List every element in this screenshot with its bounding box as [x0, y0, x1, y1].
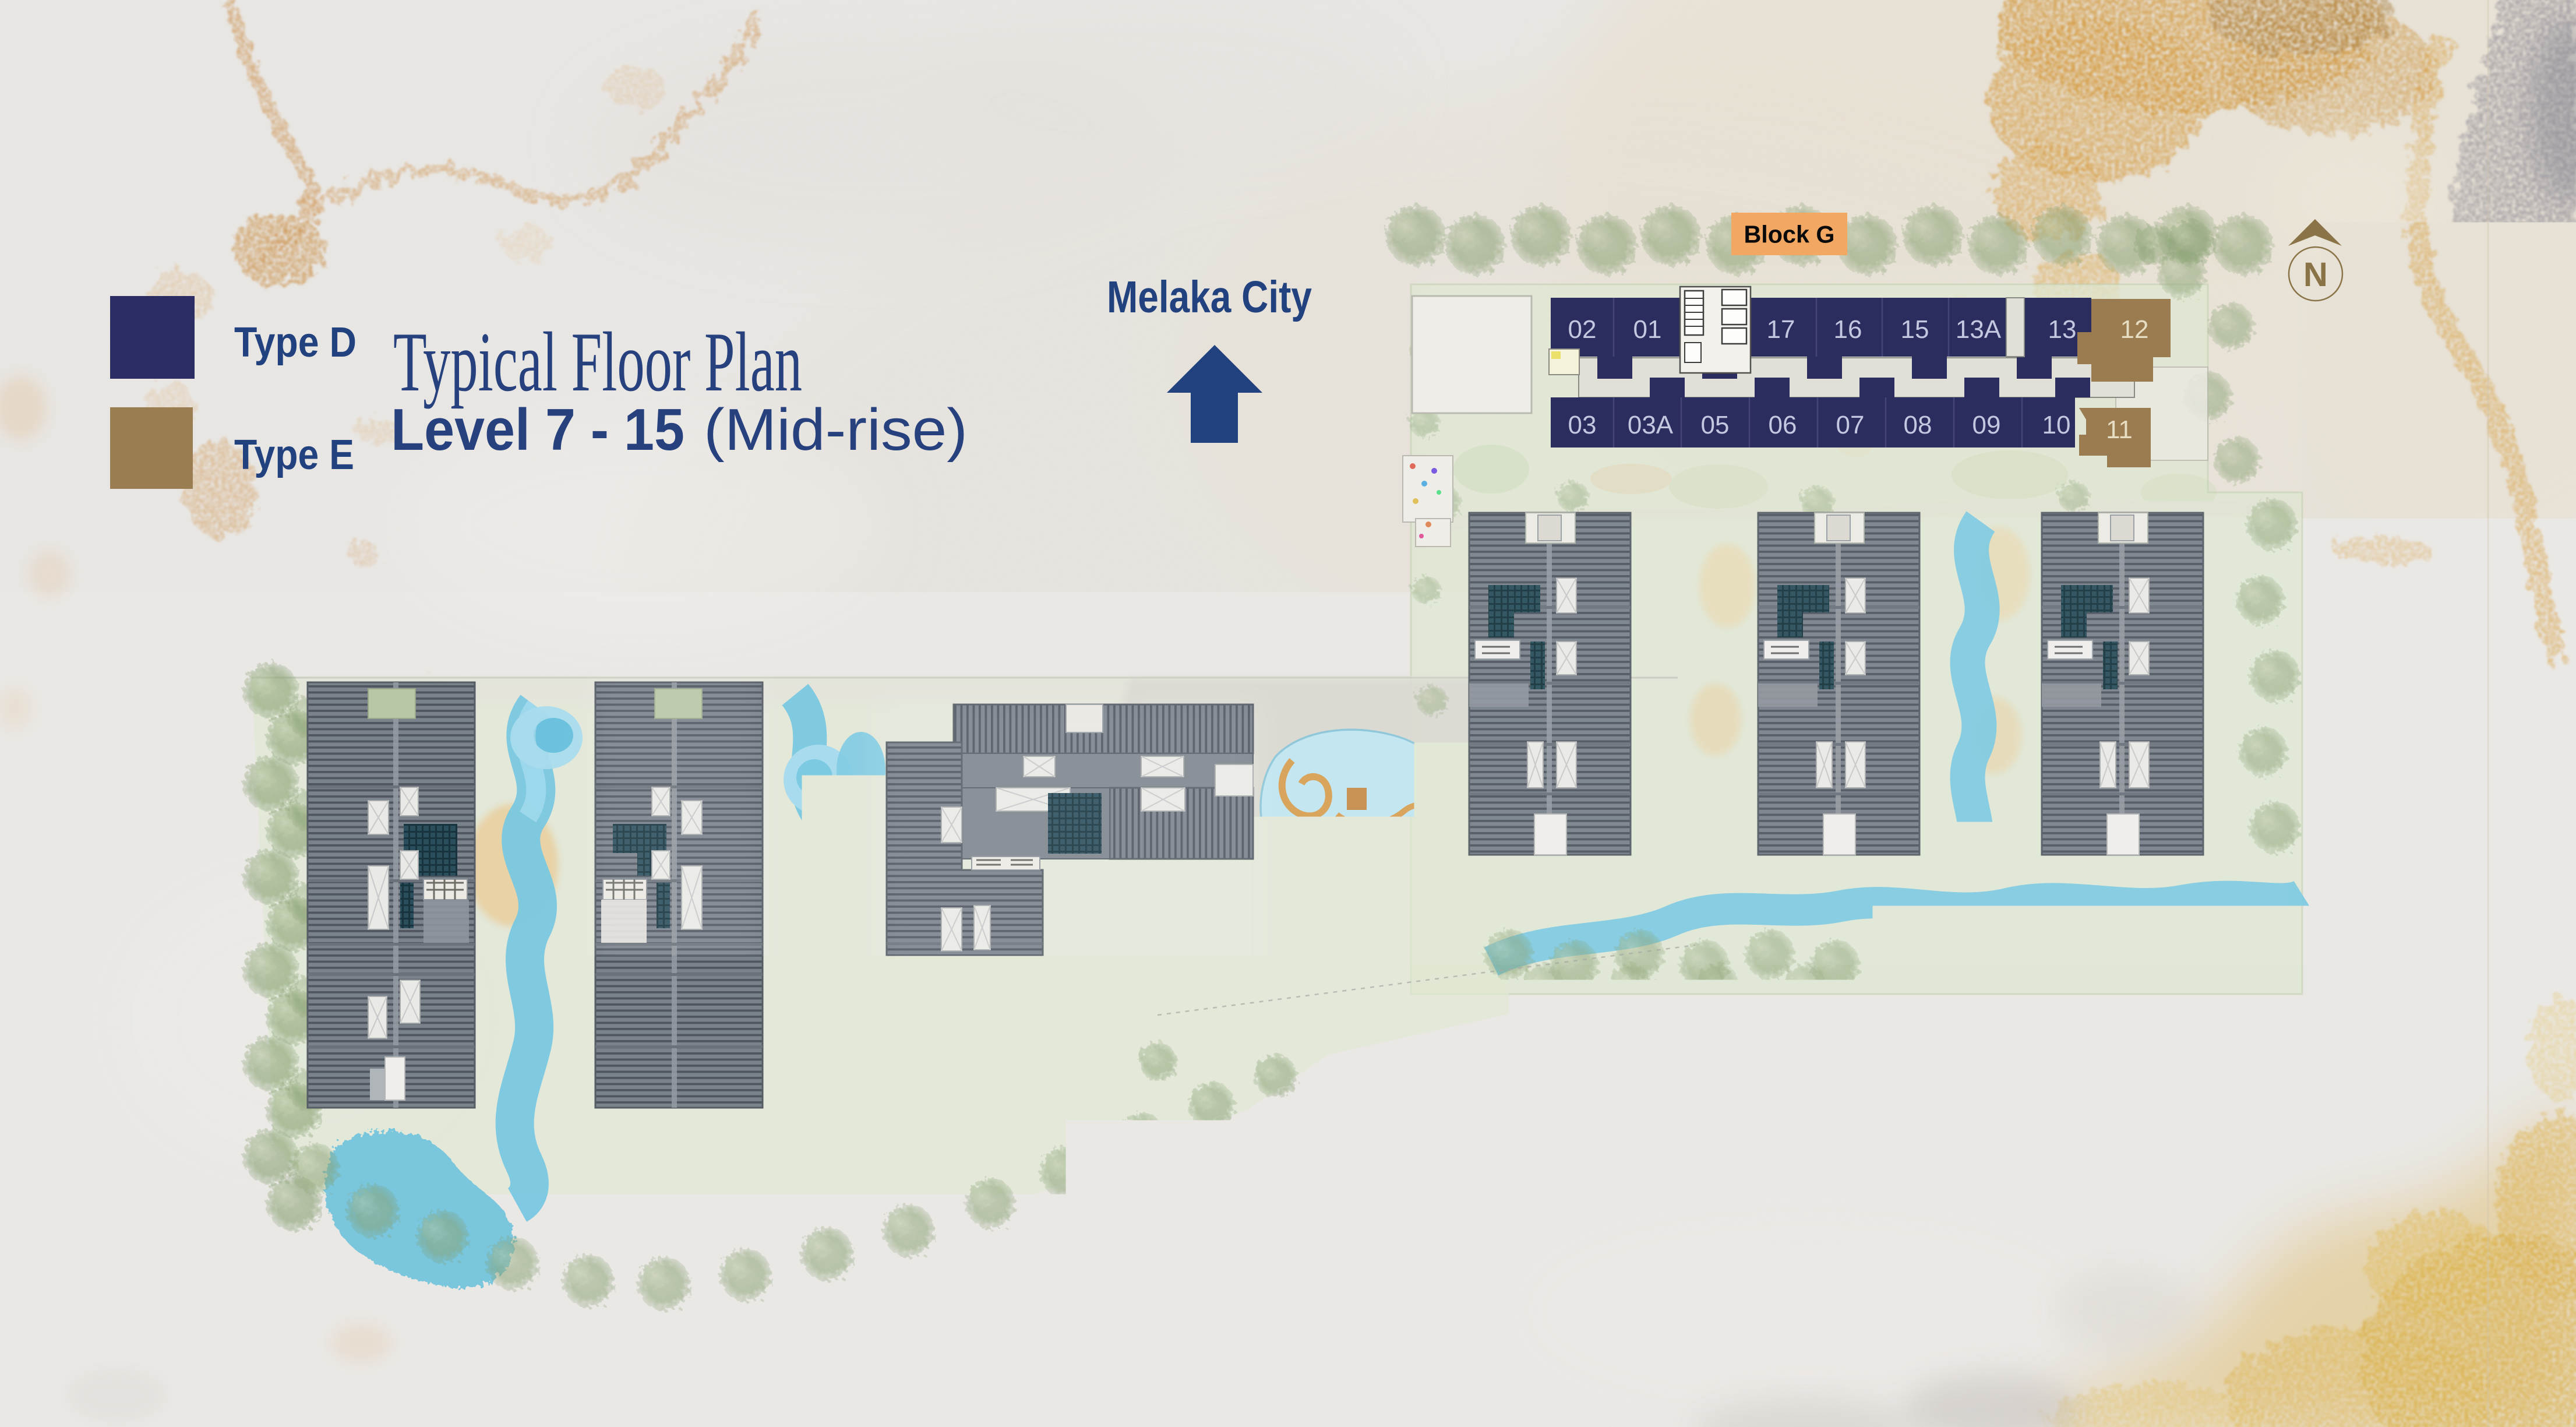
svg-text:03A: 03A — [1628, 411, 1674, 439]
svg-text:02: 02 — [1568, 315, 1597, 344]
svg-text:17: 17 — [1767, 315, 1795, 344]
svg-text:07: 07 — [1836, 411, 1865, 439]
svg-text:Typical Floor Plan: Typical Floor Plan — [393, 315, 802, 409]
svg-text:09: 09 — [1972, 411, 2001, 439]
svg-text:08: 08 — [1904, 411, 1932, 439]
svg-text:Type D: Type D — [234, 319, 357, 366]
svg-text:15: 15 — [1901, 315, 1929, 344]
svg-text:N: N — [2303, 256, 2328, 294]
svg-text:Block B: Block B — [647, 622, 736, 650]
svg-text:Type E: Type E — [234, 432, 354, 478]
svg-text:Block A: Block A — [361, 622, 437, 650]
svg-text:13A: 13A — [1956, 315, 2002, 344]
svg-text:Level 7 - 15: Level 7 - 15 — [391, 397, 684, 463]
svg-text:01: 01 — [1633, 315, 1662, 344]
svg-text:03: 03 — [1568, 411, 1597, 439]
svg-text:Block C: Block C — [1057, 622, 1146, 649]
svg-text:Pulau Melaka: Pulau Melaka — [1091, 1241, 1296, 1289]
svg-text:Melaka City: Melaka City — [1107, 272, 1312, 322]
svg-text:Block E: Block E — [1785, 867, 1872, 894]
svg-text:16: 16 — [1834, 315, 1862, 344]
svg-text:12: 12 — [2120, 315, 2149, 344]
svg-text:Block D: Block D — [1496, 867, 1585, 894]
svg-text:(Mid-rise): (Mid-rise) — [704, 397, 968, 463]
svg-text:11: 11 — [2106, 415, 2133, 444]
svg-text:Block F: Block F — [2063, 867, 2149, 894]
svg-text:Block G: Block G — [1744, 221, 1835, 248]
svg-text:13: 13 — [2048, 315, 2077, 344]
svg-text:05: 05 — [1701, 411, 1730, 439]
svg-text:06: 06 — [1769, 411, 1797, 439]
svg-text:10: 10 — [2042, 411, 2071, 439]
